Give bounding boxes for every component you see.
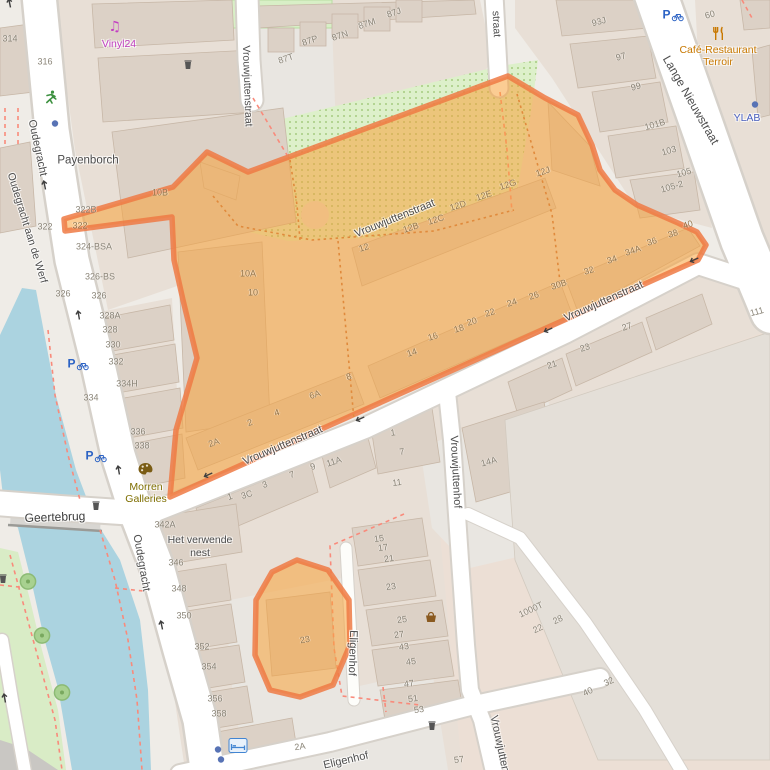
- map-canvas[interactable]: OudegrachtOudegracht aan de WerfOudegrac…: [0, 0, 770, 770]
- map-geometry: [0, 0, 770, 770]
